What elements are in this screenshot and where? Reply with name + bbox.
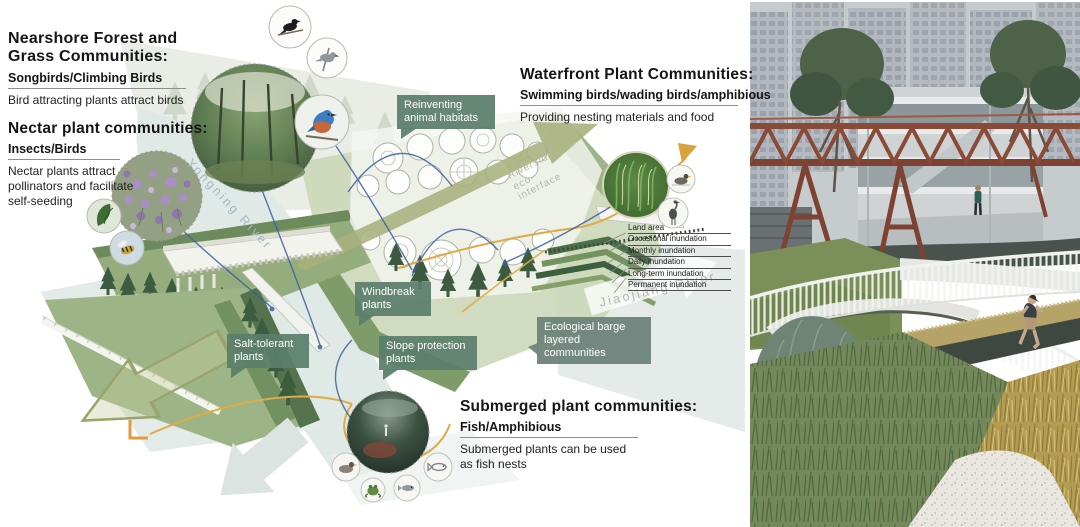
- legend-item: Permanent inundation: [628, 281, 731, 291]
- annotation-nectar: Nectar plant communities: Insects/Birds …: [8, 120, 208, 209]
- bee-icon: [110, 231, 144, 265]
- park-photo: [750, 2, 1080, 527]
- inundation-legend: Land area Occasional inundation Monthly …: [628, 224, 731, 292]
- callout-slope-protection-plants: Slope protection plants: [379, 336, 477, 370]
- callout-label: Windbreak plants: [362, 286, 415, 311]
- annotation-title: Nectar plant communities:: [8, 120, 208, 137]
- callout-salt-tolerant-plants: Salt-tolerant plants: [227, 334, 309, 368]
- annotation-description: Submerged plants can be used as fish nes…: [460, 442, 635, 472]
- bluebird-icon: [295, 95, 349, 149]
- annotation-title: Waterfront Plant Communities:: [520, 66, 770, 83]
- annotation-description: Providing nesting materials and food: [520, 110, 770, 125]
- annotation-waterfront: Waterfront Plant Communities: Swimming b…: [520, 66, 770, 125]
- waterfront-duck-icon: [667, 165, 695, 193]
- annotation-title: Nearshore Forest and Grass Communities:: [8, 30, 198, 66]
- annotation-subtitle: Insects/Birds: [8, 142, 120, 160]
- callout-label: Reinventing animal habitats: [404, 99, 478, 124]
- callout-reinventing-habitats: Reinventing animal habitats: [397, 95, 495, 129]
- fish-sketch-icon: [424, 453, 452, 481]
- annotation-subtitle: Swimming birds/wading birds/amphibious: [520, 88, 738, 106]
- callout-windbreak-plants: Windbreak plants: [355, 282, 431, 316]
- annotation-description: Bird attracting plants attract birds: [8, 93, 198, 108]
- legend-item: Monthly inundation: [628, 247, 731, 257]
- pond-duck-icon: [332, 453, 360, 481]
- legend-item: Long-term inundation: [628, 270, 731, 280]
- annotation-nearshore: Nearshore Forest and Grass Communities: …: [8, 30, 198, 108]
- annotation-title: Submerged plant communities:: [460, 398, 710, 415]
- callout-label: Salt-tolerant plants: [234, 338, 293, 363]
- legend-item: Land area: [628, 224, 731, 234]
- frog-icon: [361, 478, 385, 502]
- infographic-canvas: Nearshore Forest and Grass Communities: …: [0, 0, 1080, 527]
- gray-bird-icon: [307, 38, 347, 78]
- callout-label: Ecological barge layered communities: [544, 321, 625, 359]
- legend-item: Occasional inundation: [628, 235, 731, 245]
- annotation-description: Nectar plants attract pollinators and fa…: [8, 164, 146, 209]
- fish-icon: [394, 475, 420, 501]
- callout-label: Slope protection plants: [386, 340, 466, 365]
- legend-item: Daily inundation: [628, 258, 731, 268]
- annotation-submerged: Submerged plant communities: Fish/Amphib…: [460, 398, 710, 472]
- callout-ecological-barge: Ecological barge layered communities: [537, 317, 651, 364]
- annotation-subtitle: Songbirds/Climbing Birds: [8, 71, 186, 89]
- songbird-icon: [269, 6, 311, 48]
- annotation-subtitle: Fish/Amphibious: [460, 420, 638, 438]
- pond-photo-circle: [347, 391, 429, 473]
